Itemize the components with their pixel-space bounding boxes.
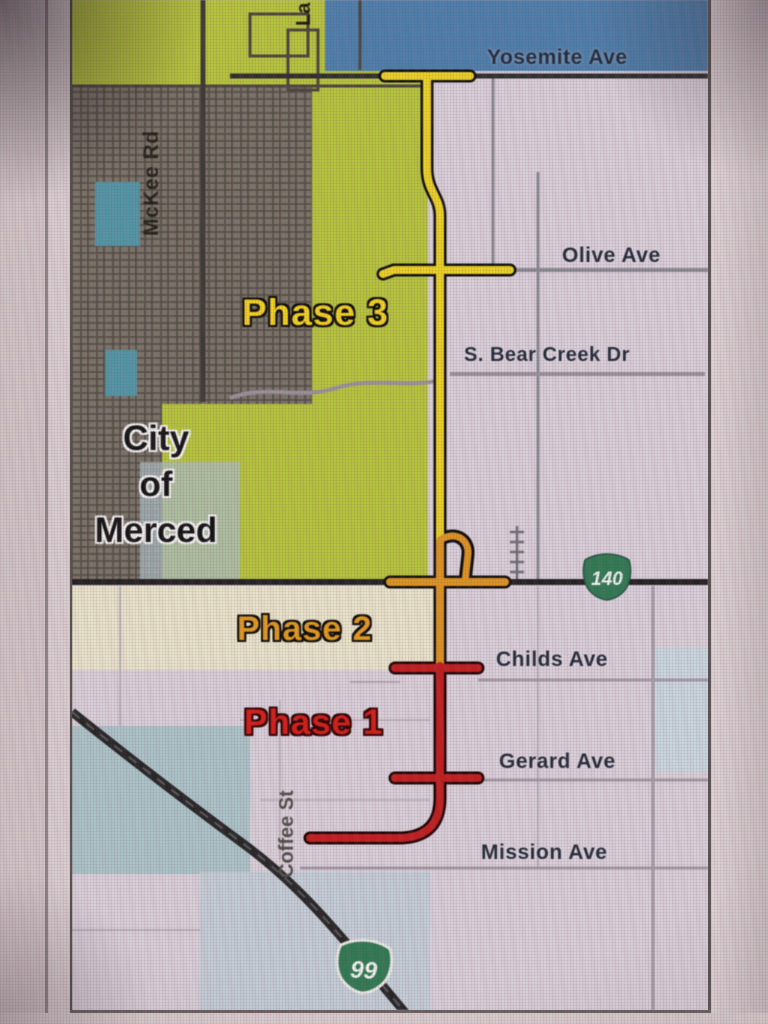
label-phase-1: Phase 1 — [244, 705, 383, 742]
label-phase-2: Phase 2 — [237, 612, 373, 648]
label-phase-3: Phase 3 — [242, 294, 389, 333]
bottom-blue-zone — [200, 872, 430, 1010]
label-mission-ave: Mission Ave — [481, 842, 607, 864]
us99-number: 99 — [349, 956, 378, 985]
teal-zone — [95, 182, 140, 246]
label-gerard-ave: Gerard Ave — [499, 751, 616, 773]
label-olive-ave: Olive Ave — [562, 245, 661, 267]
label-bear-creek-dr: S. Bear Creek Dr — [464, 345, 630, 366]
map-artwork: 140 99 Yosemite Ave Olive Ave S. Bear Cr… — [72, 0, 708, 1010]
label-yosemite-ave: Yosemite Ave — [487, 47, 628, 69]
phasing-map: 140 99 Yosemite Ave Olive Ave S. Bear Cr… — [72, 0, 708, 1010]
southwest-teal-zone — [72, 726, 250, 874]
bezel-right-strip — [711, 0, 768, 1024]
label-la-partial: La — [294, 3, 315, 26]
screen-photo: 140 99 Yosemite Ave Olive Ave S. Bear Cr… — [0, 0, 768, 1024]
sr140-number: 140 — [591, 569, 623, 590]
label-mckee-rd: McKee Rd — [141, 130, 163, 236]
label-coffee-st: Coffee St — [277, 790, 298, 878]
bezel-bottom-strip — [0, 1013, 768, 1024]
bezel-left-strip — [48, 0, 70, 1024]
label-childs-ave: Childs Ave — [496, 649, 608, 671]
label-city-of-merced: City of Merced — [72, 416, 240, 555]
